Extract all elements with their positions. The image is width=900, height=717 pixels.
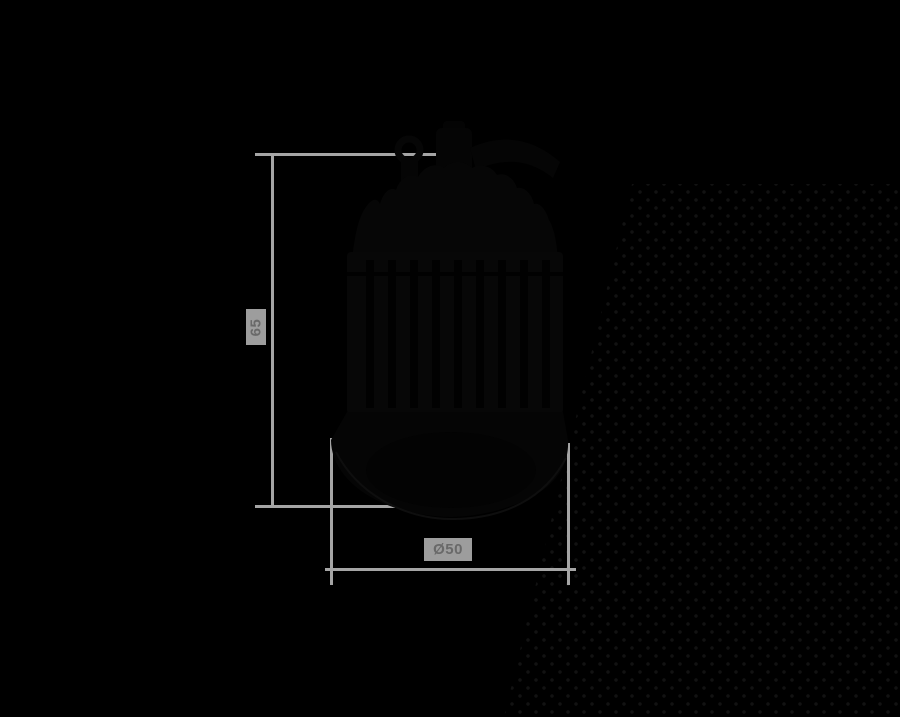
heatsink-fin-crown-silhouette <box>352 162 558 262</box>
cable-loop-silhouette <box>398 139 420 161</box>
dimension-drawing-canvas: 65 Ø50 <box>0 0 900 717</box>
fin-grooves <box>366 260 550 408</box>
product-silhouette <box>0 0 900 717</box>
height-dimension-label: 65 <box>246 309 266 345</box>
lens-face-shade <box>366 432 536 508</box>
diameter-value: Ø50 <box>433 541 463 558</box>
diameter-dimension-label: Ø50 <box>424 538 472 561</box>
height-value: 65 <box>248 318 265 336</box>
body-groove-line <box>347 272 563 276</box>
